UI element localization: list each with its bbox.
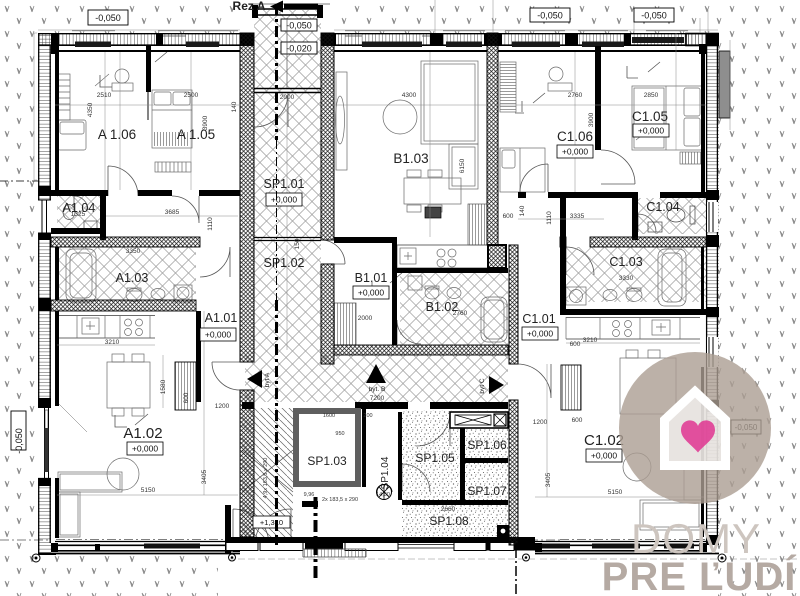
svg-text:byt. B: byt. B <box>369 386 386 393</box>
svg-text:C1.02: C1.02 <box>584 432 624 449</box>
svg-text:3685: 3685 <box>165 209 180 216</box>
svg-text:3335: 3335 <box>570 213 585 220</box>
svg-text:5150: 5150 <box>608 489 623 496</box>
svg-text:2000: 2000 <box>358 315 373 322</box>
svg-text:-0,050: -0,050 <box>641 11 667 21</box>
svg-text:4300: 4300 <box>402 92 417 99</box>
svg-text:3210: 3210 <box>583 337 598 344</box>
svg-text:A1.04: A1.04 <box>63 201 96 215</box>
svg-text:3900: 3900 <box>588 112 595 127</box>
svg-text:+0,000: +0,000 <box>132 444 159 454</box>
svg-text:-0,020: -0,020 <box>286 44 312 54</box>
svg-text:140: 140 <box>519 205 526 216</box>
svg-text:140: 140 <box>231 101 238 112</box>
svg-text:2x 183,5 x 290: 2x 183,5 x 290 <box>322 497 358 503</box>
svg-text:7200: 7200 <box>370 395 385 402</box>
svg-text:B1.01: B1.01 <box>355 271 388 285</box>
svg-text:C1.06: C1.06 <box>557 129 593 144</box>
svg-text:+0,000: +0,000 <box>205 330 232 340</box>
svg-text:1200: 1200 <box>533 419 548 426</box>
svg-text:600: 600 <box>572 417 583 424</box>
svg-text:+0,000: +0,000 <box>591 451 618 461</box>
svg-text:3405: 3405 <box>201 469 208 484</box>
svg-text:C1.04: C1.04 <box>646 200 679 214</box>
svg-text:B1.02: B1.02 <box>426 300 459 314</box>
svg-text:+0,000: +0,000 <box>527 329 554 339</box>
svg-text:Rez A: Rez A <box>233 0 266 13</box>
svg-text:PRE ĽUDÍ: PRE ĽUDÍ <box>602 554 797 596</box>
svg-text:1200: 1200 <box>215 403 230 410</box>
svg-text:+0,000: +0,000 <box>358 288 385 298</box>
svg-text:600: 600 <box>570 341 581 348</box>
svg-text:SP1.01: SP1.01 <box>263 177 304 191</box>
svg-text:4350: 4350 <box>87 102 94 117</box>
svg-text:3330: 3330 <box>619 275 634 282</box>
svg-text:-0,050: -0,050 <box>14 428 24 454</box>
svg-text:2000: 2000 <box>280 94 295 101</box>
svg-text:C1.05: C1.05 <box>632 109 668 124</box>
svg-text:1110: 1110 <box>546 211 553 225</box>
svg-text:5150: 5150 <box>141 487 156 494</box>
svg-text:+1,310: +1,310 <box>260 518 283 527</box>
svg-text:-0,050: -0,050 <box>537 11 563 21</box>
svg-text:SP1.06: SP1.06 <box>467 438 507 452</box>
svg-text:3210: 3210 <box>105 339 120 346</box>
svg-text:2510: 2510 <box>97 92 112 99</box>
svg-text:A 1.06: A 1.06 <box>98 127 136 142</box>
svg-text:6150: 6150 <box>459 158 466 173</box>
svg-text:C1.01: C1.01 <box>522 312 555 326</box>
svg-text:3350: 3350 <box>126 248 141 255</box>
svg-text:2850: 2850 <box>644 92 659 99</box>
svg-text:+0,000: +0,000 <box>271 195 298 205</box>
svg-text:9,96: 9,96 <box>304 492 315 498</box>
svg-text:4,9x 163,5 x 290: 4,9x 163,5 x 290 <box>263 458 269 499</box>
svg-text:600: 600 <box>183 392 190 403</box>
svg-text:2500: 2500 <box>184 92 199 99</box>
svg-text:600: 600 <box>503 213 514 220</box>
svg-text:SP1.07: SP1.07 <box>467 484 507 498</box>
svg-text:A1.01: A1.01 <box>205 311 238 325</box>
svg-text:+0,000: +0,000 <box>638 126 665 136</box>
svg-text:A1.03: A1.03 <box>116 271 149 285</box>
svg-text:-0,050: -0,050 <box>286 21 312 31</box>
svg-text:200: 200 <box>363 413 372 419</box>
svg-text:2760: 2760 <box>568 92 583 99</box>
svg-text:B1.03: B1.03 <box>393 151 428 166</box>
svg-text:+0,000: +0,000 <box>562 147 589 157</box>
svg-text:1580: 1580 <box>160 379 167 394</box>
svg-text:1110: 1110 <box>207 217 214 231</box>
svg-text:A 1.05: A 1.05 <box>177 127 215 142</box>
svg-text:C1.03: C1.03 <box>609 255 642 269</box>
svg-text:byt C: byt C <box>479 378 486 393</box>
svg-text:1600: 1600 <box>323 413 335 419</box>
svg-text:SP1.05: SP1.05 <box>415 451 455 465</box>
svg-text:2660: 2660 <box>441 506 456 513</box>
svg-text:SP1.03: SP1.03 <box>307 454 347 468</box>
svg-text:SP1.02: SP1.02 <box>263 256 304 270</box>
svg-text:3405: 3405 <box>545 472 552 487</box>
svg-text:SP1.08: SP1.08 <box>429 514 469 528</box>
svg-text:950: 950 <box>335 431 344 437</box>
svg-text:150: 150 <box>294 238 301 249</box>
svg-text:byt A: byt A <box>264 372 271 387</box>
svg-text:A1.02: A1.02 <box>123 425 162 442</box>
svg-text:-0,050: -0,050 <box>95 13 121 23</box>
